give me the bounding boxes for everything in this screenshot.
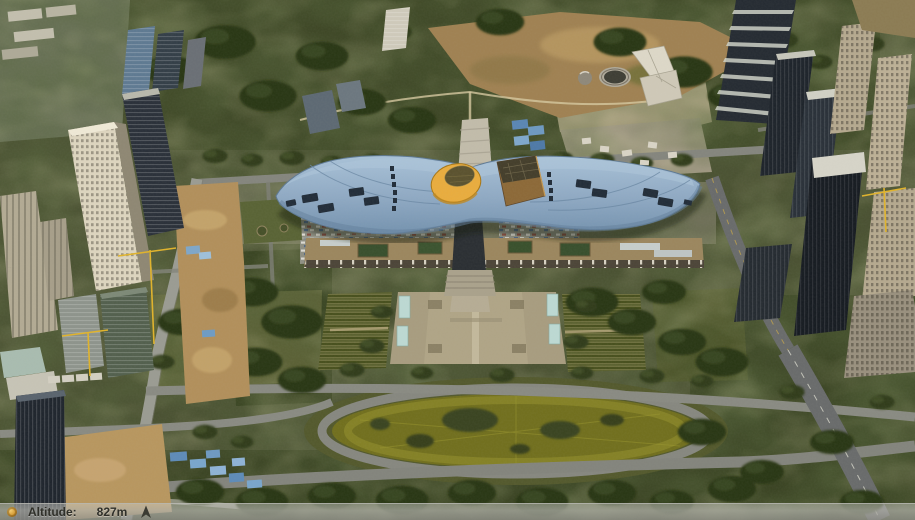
film-grain	[0, 0, 915, 520]
altitude-label: Altitude:	[28, 505, 77, 519]
altitude-dot-icon	[7, 507, 17, 517]
status-bar: Altitude: 827m	[0, 503, 915, 520]
north-arrow-icon[interactable]	[140, 505, 152, 519]
app-window: Altitude: 827m	[0, 0, 915, 520]
altitude-value: 827m	[97, 505, 128, 519]
map-view[interactable]	[0, 0, 915, 520]
